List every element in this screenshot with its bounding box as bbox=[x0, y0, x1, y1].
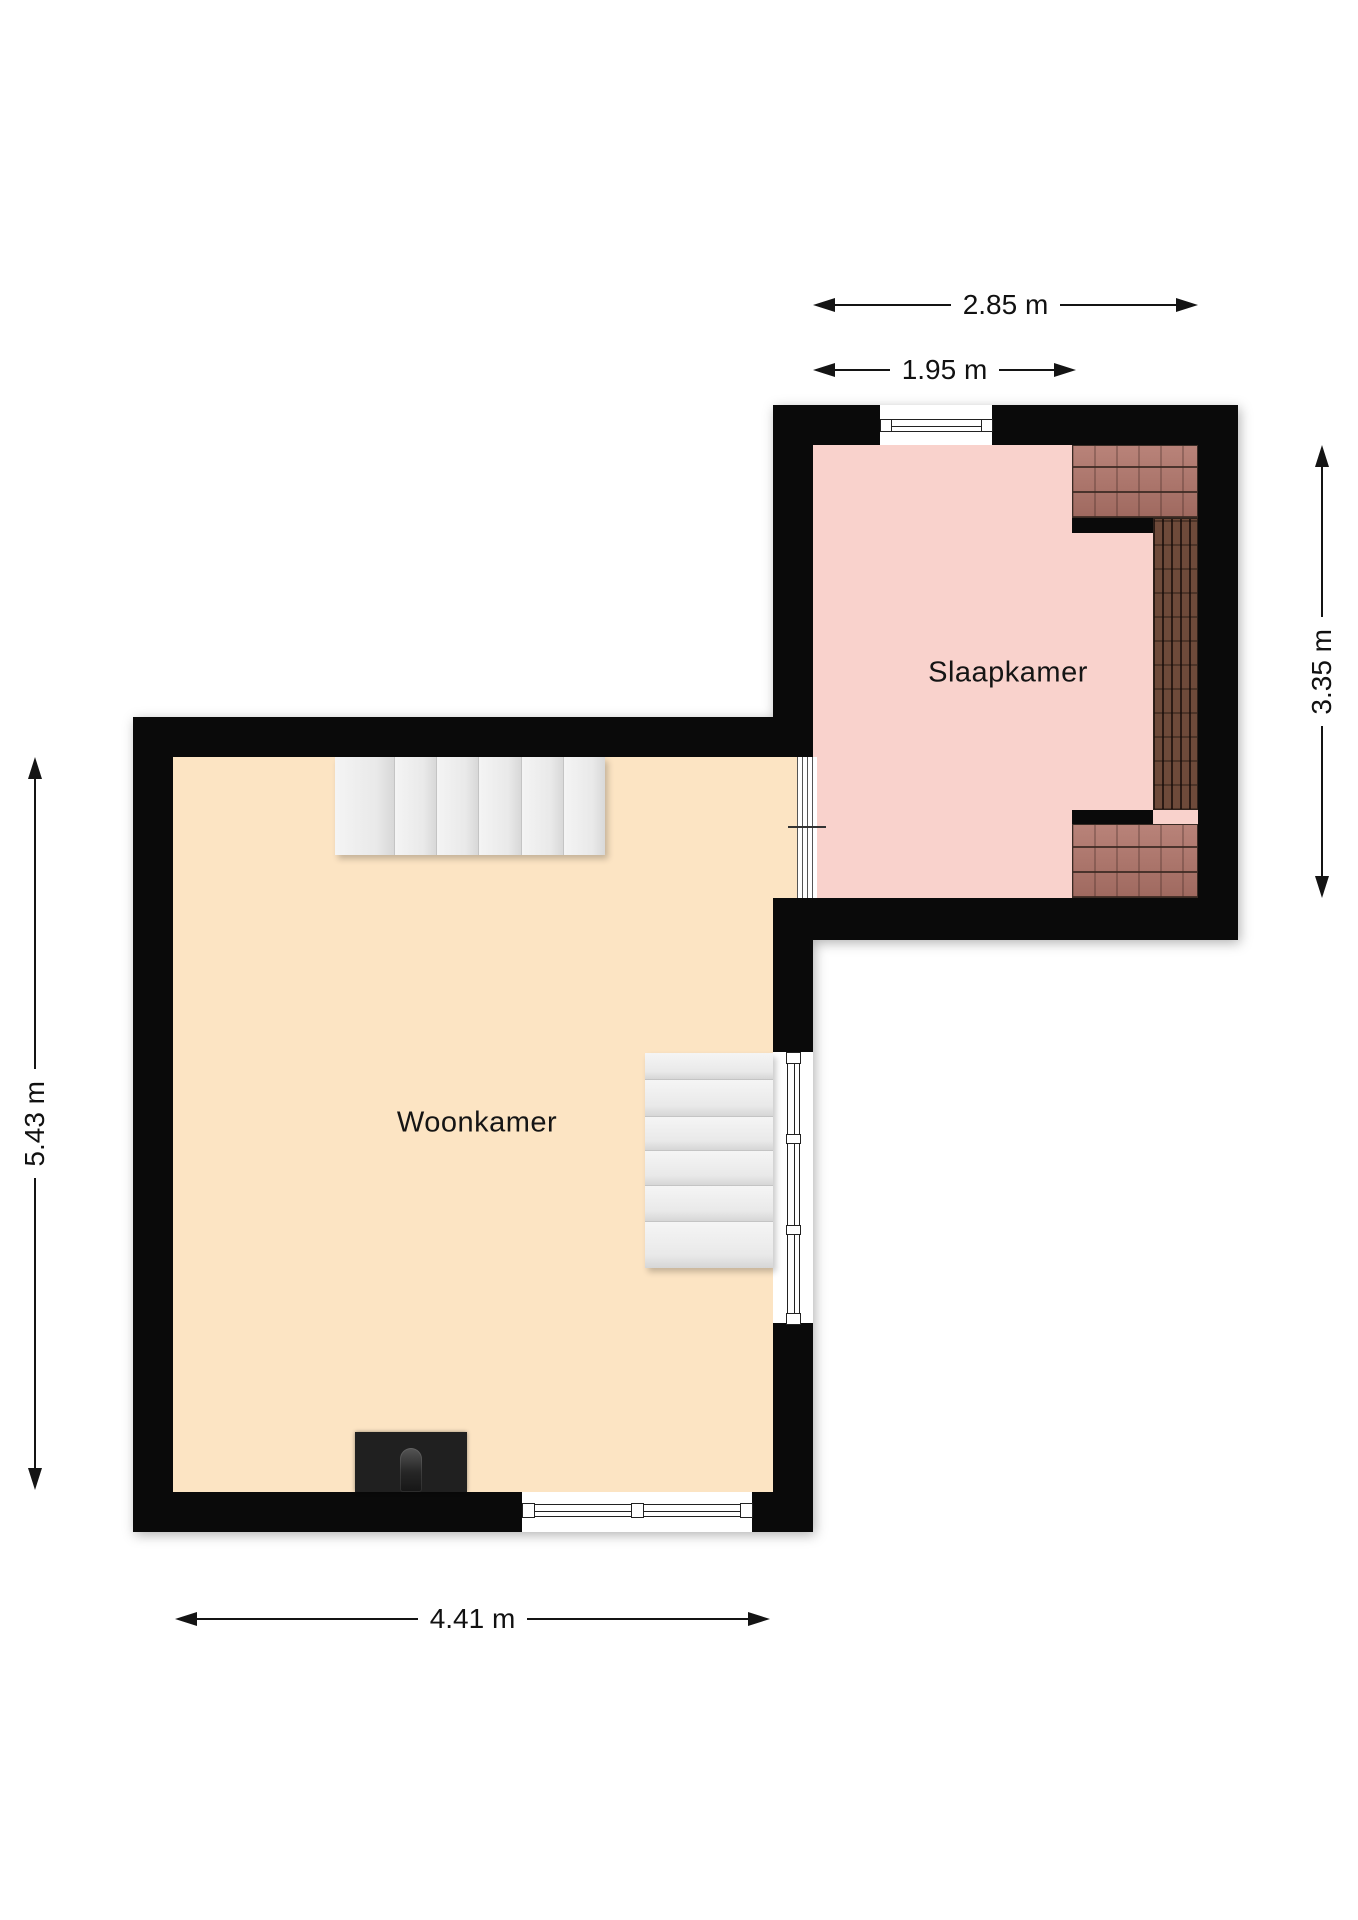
bedroom-wall-right bbox=[1198, 405, 1238, 940]
fireplace-flue-icon bbox=[400, 1448, 422, 1492]
roof-tiles-top bbox=[1072, 445, 1198, 518]
stair-step bbox=[437, 757, 479, 855]
bedroom-window-glazing bbox=[880, 419, 992, 432]
bottom-window-frame-right bbox=[740, 1503, 753, 1518]
dimension-bedroom-width-total: 2.85 m bbox=[813, 289, 1198, 321]
dimension-livingroom-width: 4.41 m bbox=[175, 1603, 770, 1635]
arrowhead-left-icon bbox=[813, 298, 835, 312]
livingroom-wall-top bbox=[133, 717, 813, 757]
right-window-divider-2 bbox=[786, 1225, 801, 1235]
arrowhead-down-icon bbox=[1315, 876, 1329, 898]
bedroom-wall-bottom bbox=[773, 898, 1238, 940]
livingroom-wall-left bbox=[133, 717, 173, 1532]
arrowhead-right-icon bbox=[1054, 363, 1076, 377]
livingroom-wall-right-lower bbox=[773, 1323, 813, 1532]
livingroom-wall-right-upper bbox=[773, 898, 813, 1052]
stair-step bbox=[564, 757, 605, 855]
room-label-slaapkamer: Slaapkamer bbox=[928, 657, 1088, 690]
stair-step bbox=[645, 1117, 773, 1151]
stair-step bbox=[645, 1222, 773, 1268]
bottom-window-frame-left bbox=[522, 1503, 535, 1518]
stair-step bbox=[335, 757, 395, 855]
arrowhead-right-icon bbox=[748, 1612, 770, 1626]
stair-step bbox=[522, 757, 564, 855]
roof-step-wall-bottom bbox=[1072, 810, 1153, 824]
dimension-label: 3.35 m bbox=[1306, 629, 1338, 715]
stair-step bbox=[645, 1151, 773, 1186]
arrowhead-up-icon bbox=[28, 757, 42, 779]
stair-step bbox=[645, 1186, 773, 1222]
arrowhead-left-icon bbox=[175, 1612, 197, 1626]
floorplan-canvas: Slaapkamer Woonkamer 2.85 m 1.95 m 3.35 … bbox=[0, 0, 1358, 1920]
dimension-livingroom-height: 5.43 m bbox=[19, 757, 51, 1490]
dimension-label: 5.43 m bbox=[19, 1081, 51, 1167]
dimension-label: 4.41 m bbox=[430, 1603, 516, 1635]
fireplace bbox=[355, 1432, 467, 1492]
dimension-label: 2.85 m bbox=[963, 289, 1049, 321]
stair-step bbox=[395, 757, 437, 855]
stair-step bbox=[479, 757, 521, 855]
right-window-frame-bottom bbox=[786, 1313, 801, 1325]
dimension-bedroom-depth: 3.35 m bbox=[1306, 445, 1338, 898]
stair-step bbox=[645, 1053, 773, 1080]
right-window-divider-1 bbox=[786, 1134, 801, 1144]
arrowhead-right-icon bbox=[1176, 298, 1198, 312]
bedroom-window-frame-left bbox=[880, 419, 892, 432]
arrowhead-up-icon bbox=[1315, 445, 1329, 467]
dimension-label: 1.95 m bbox=[902, 354, 988, 386]
arrowhead-left-icon bbox=[813, 363, 835, 377]
dimension-bedroom-width-flat: 1.95 m bbox=[813, 354, 1076, 386]
bottom-window-divider bbox=[631, 1503, 644, 1518]
livingroom-right-window-glazing bbox=[787, 1052, 800, 1323]
room-label-woonkamer: Woonkamer bbox=[397, 1107, 557, 1140]
bedroom-wall-left bbox=[773, 405, 813, 757]
roof-step-wall-top bbox=[1072, 518, 1153, 533]
staircase-top bbox=[335, 757, 605, 855]
roof-tiles-bottom bbox=[1072, 824, 1198, 898]
right-window-frame-top bbox=[786, 1052, 801, 1064]
bedroom-window-frame-right bbox=[981, 419, 993, 432]
stair-step bbox=[645, 1080, 773, 1117]
staircase-middle bbox=[645, 1053, 773, 1268]
bedroom-wall-top bbox=[773, 405, 1238, 445]
arrowhead-down-icon bbox=[28, 1468, 42, 1490]
partition-mullion-tick bbox=[788, 826, 826, 828]
roof-tiles-side bbox=[1153, 518, 1198, 810]
